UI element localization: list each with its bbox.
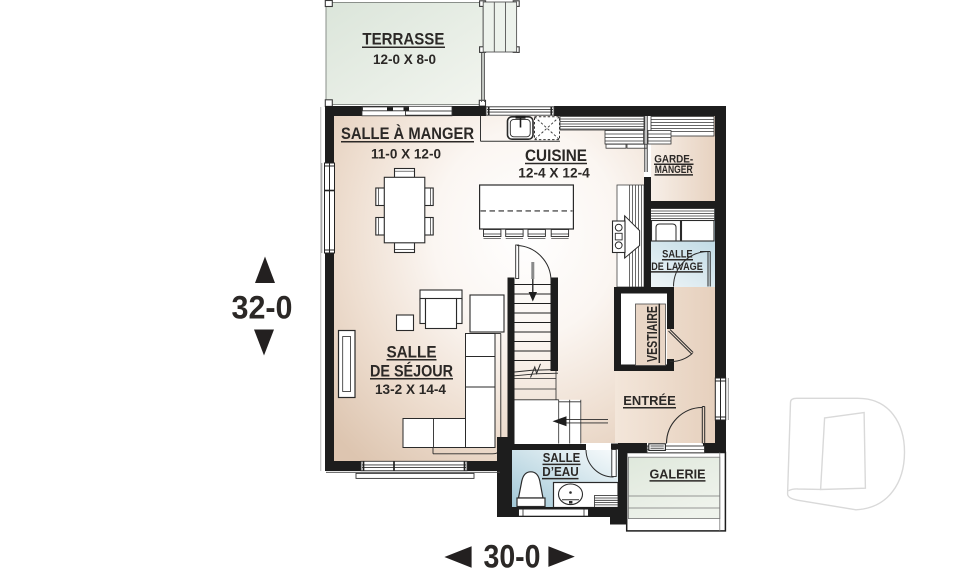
svg-text:12-0 X 8-0: 12-0 X 8-0 [373,51,436,67]
svg-text:GALERIE: GALERIE [650,466,706,481]
svg-text:SALLE: SALLE [387,343,437,361]
svg-text:12-4 X 12-4: 12-4 X 12-4 [518,164,590,180]
svg-text:ENTRÉE: ENTRÉE [623,393,676,408]
svg-text:TERRASSE: TERRASSE [362,30,444,49]
svg-text:SALLE: SALLE [662,249,693,261]
svg-text:D’EAU: D’EAU [542,465,579,479]
svg-text:SALLE À MANGER: SALLE À MANGER [341,124,474,143]
svg-text:CUISINE: CUISINE [525,147,587,165]
svg-text:DE SÉJOUR: DE SÉJOUR [370,361,453,380]
svg-text:30-0: 30-0 [484,539,541,569]
svg-text:SALLE: SALLE [543,451,581,465]
svg-text:VESTIAIRE: VESTIAIRE [645,306,661,362]
svg-text:MANGER: MANGER [655,164,693,176]
svg-text:13-2 X 14-4: 13-2 X 14-4 [375,381,446,397]
svg-text:DE LAVAGE: DE LAVAGE [651,261,703,273]
svg-text:11-0 X 12-0: 11-0 X 12-0 [371,145,441,161]
svg-text:32-0: 32-0 [232,290,293,326]
